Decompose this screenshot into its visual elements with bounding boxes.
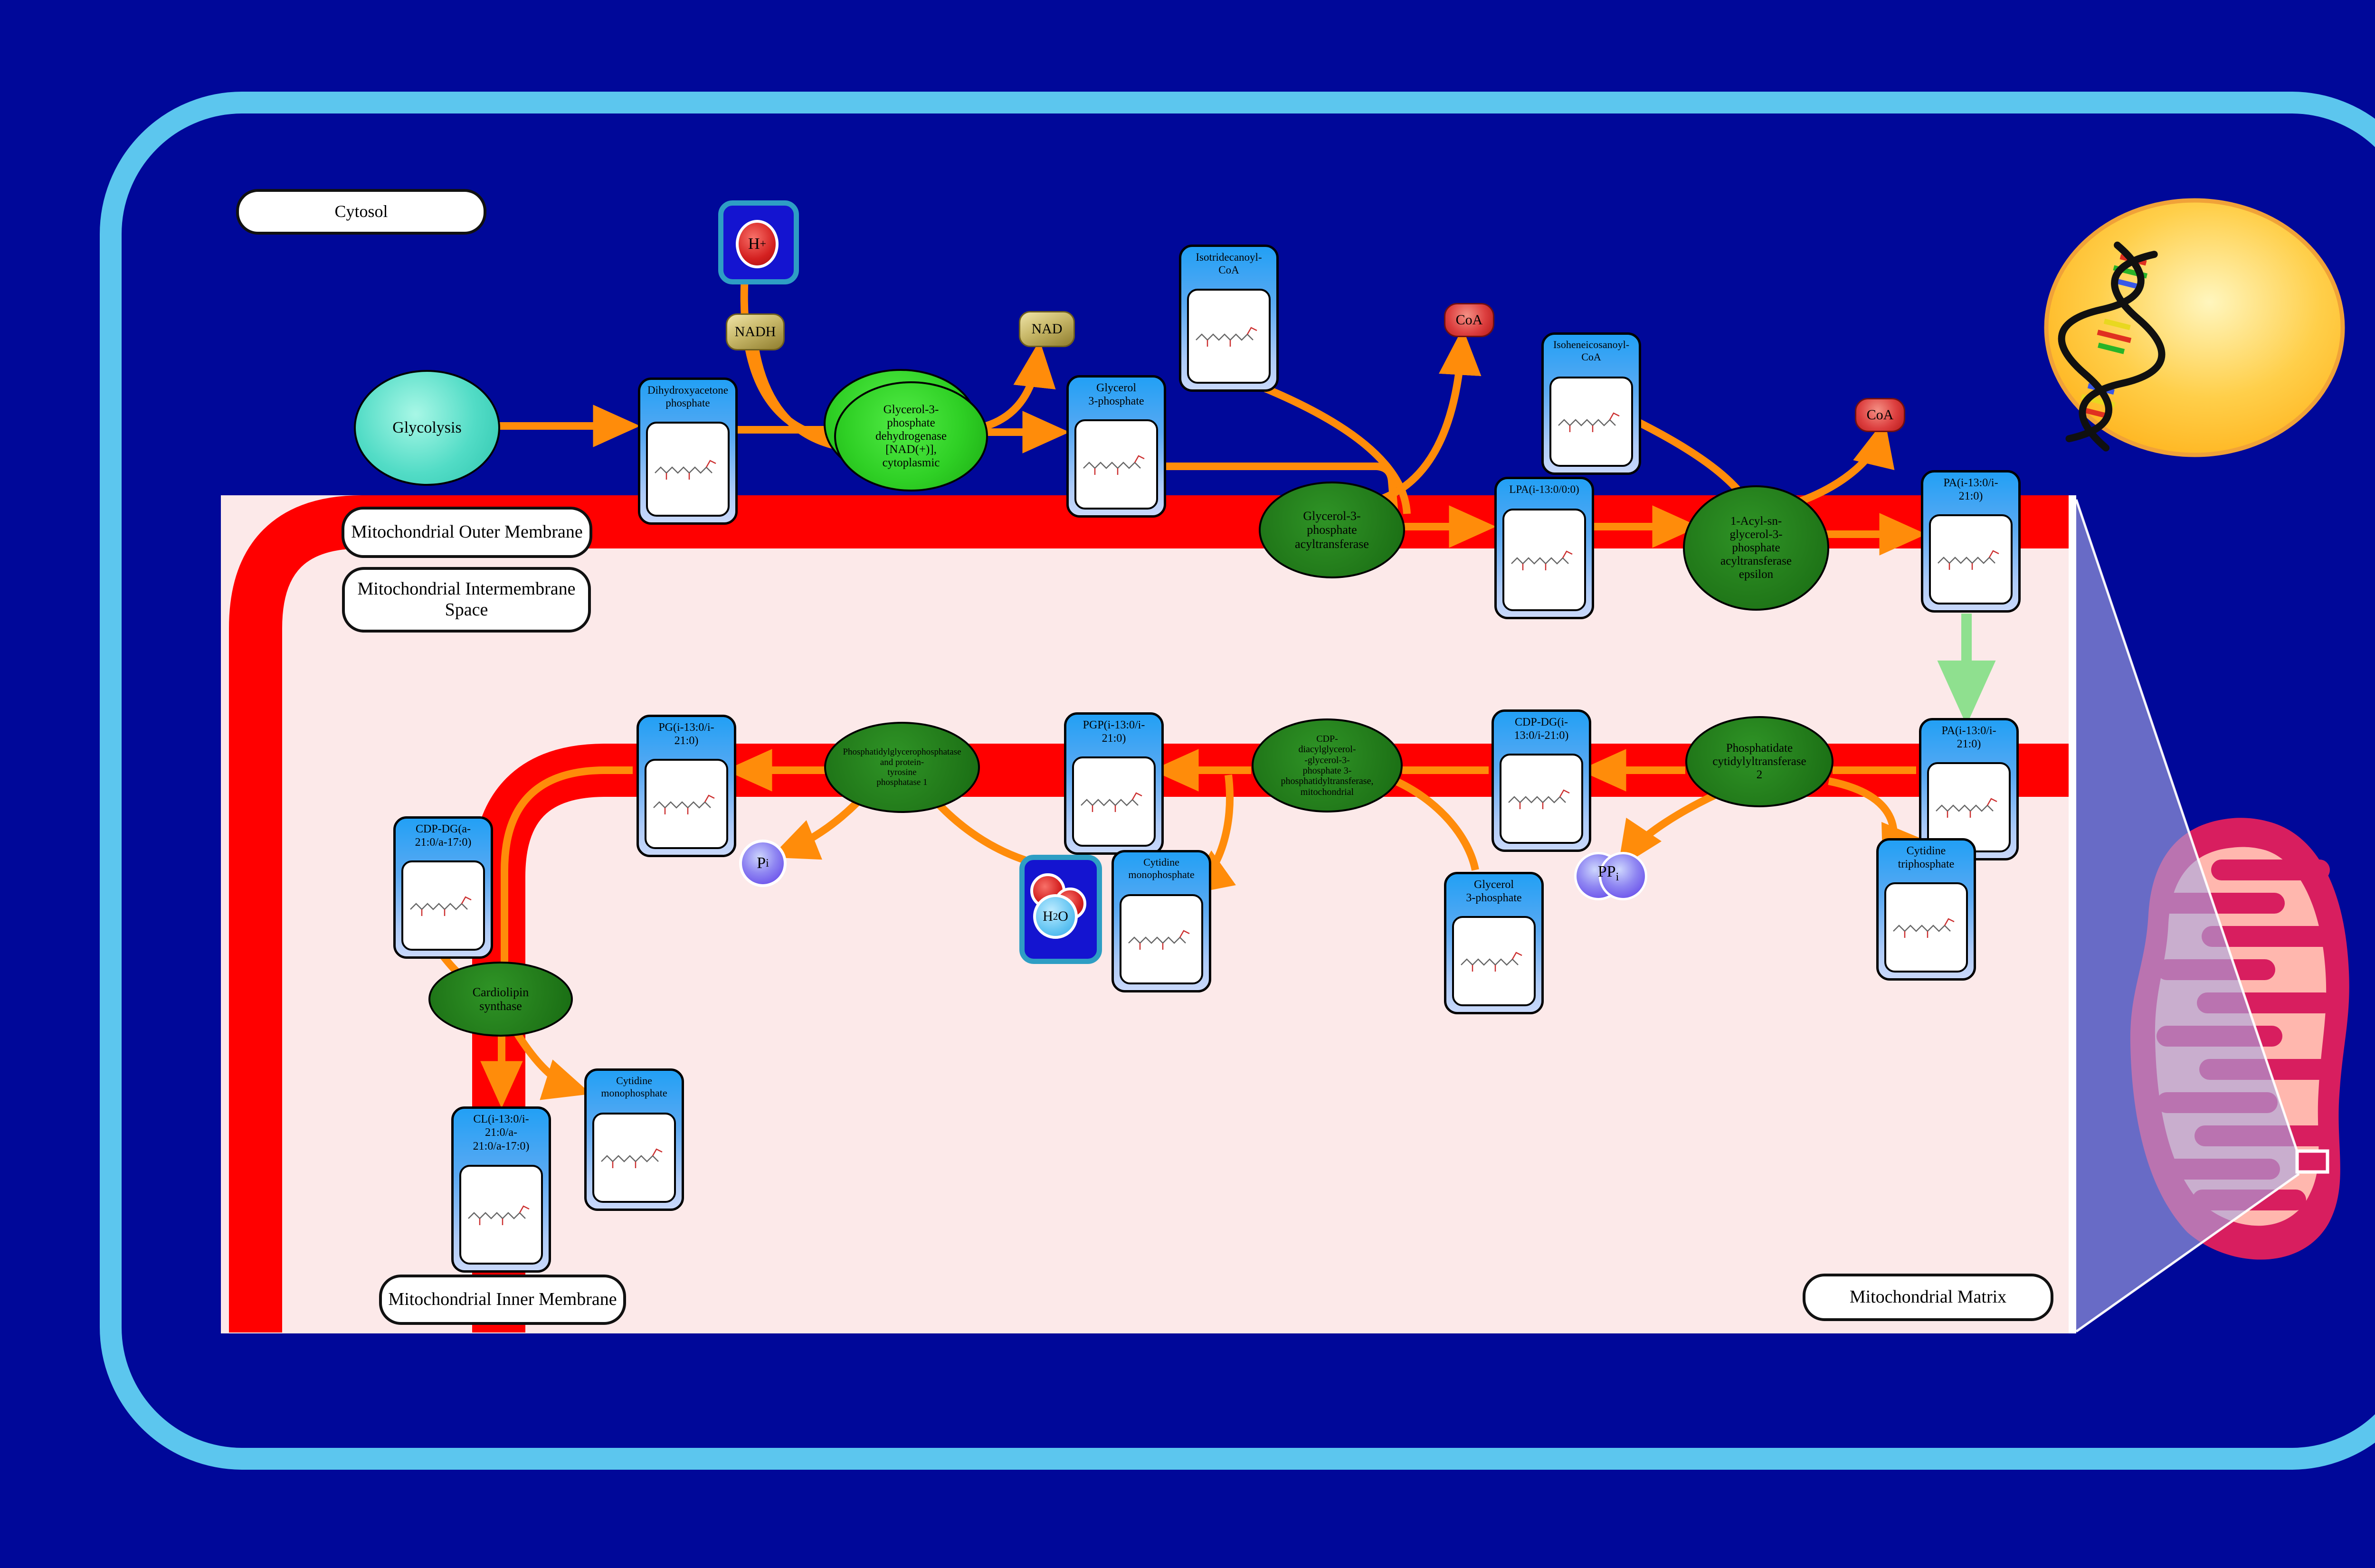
enzyme-agpat-epsilon[interactable]: 1-Acyl-sn- glycerol-3- phosphate acyltra…	[1683, 485, 1829, 611]
metabolite-label: CDP-DG(i- 13:0/i-21:0)	[1494, 716, 1589, 743]
enzyme-cdp-dag-g3p-phosphatidyltransferase[interactable]: CDP- diacylglycerol- -glycerol-3- phosph…	[1252, 718, 1403, 812]
molecule-structure-icon	[1081, 445, 1152, 483]
metabolite-label: PG(i-13:0/i- 21:0)	[639, 721, 734, 748]
metabolite-label: PA(i-13:0/i- 21:0)	[1921, 724, 2016, 751]
enzyme-gpd-cytoplasmic[interactable]: Glycerol-3- phosphate dehydrogenase [NAD…	[834, 381, 988, 491]
molecule-structure-icon	[1458, 942, 1529, 980]
enzyme-pgp-phosphatase[interactable]: Phosphatidylglycerophosphatase and prote…	[824, 722, 980, 813]
molecule-structure	[459, 1165, 543, 1265]
metabolite-cdp-dg-a[interactable]: CDP-DG(a- 21:0/a-17:0)	[393, 816, 493, 959]
region-label-outer-membrane: Mitochondrial Outer Membrane	[342, 507, 592, 558]
molecule-structure-icon	[598, 1139, 670, 1177]
cofactor-pi[interactable]: Pi	[739, 840, 787, 887]
process-glycolysis[interactable]: Glycolysis	[354, 370, 500, 486]
molecule-structure-icon	[1890, 908, 1962, 946]
icon-h2o[interactable]: H2O	[1019, 855, 1102, 964]
metabolite-isotridecanoyl-coa[interactable]: Isotridecanoyl- CoA	[1179, 245, 1279, 392]
molecule-structure-icon	[1078, 783, 1149, 821]
region-label-inner-membrane: Mitochondrial Inner Membrane	[379, 1275, 626, 1325]
molecule-structure	[592, 1113, 676, 1203]
molecule-structure-icon	[1556, 403, 1627, 441]
metabolite-label: Glycerol 3-phosphate	[1069, 381, 1164, 408]
water-sphere-icon: H2O	[1033, 894, 1078, 939]
metabolite-cl[interactable]: CL(i-13:0/i- 21:0/a- 21:0/a-17:0)	[451, 1106, 551, 1273]
metabolite-cmp-2[interactable]: Cytidine monophosphate	[584, 1068, 684, 1211]
metabolite-label: Isotridecanoyl- CoA	[1181, 251, 1276, 276]
metabolite-label: LPA(i-13:0/0:0)	[1497, 483, 1592, 496]
molecule-structure	[1502, 509, 1586, 611]
molecule-structure-icon	[1935, 540, 2006, 578]
metabolite-label: CL(i-13:0/i- 21:0/a- 21:0/a-17:0)	[454, 1113, 549, 1153]
molecule-structure-icon	[465, 1196, 537, 1234]
enzyme-phosphatidate-cytidylyltransferase-2[interactable]: Phosphatidate cytidylyltransferase 2	[1685, 716, 1833, 807]
metabolite-label: PGP(i-13:0/i- 21:0)	[1066, 718, 1161, 746]
metabolite-label: CDP-DG(a- 21:0/a-17:0)	[396, 822, 491, 850]
metabolite-cmp-matrix[interactable]: Cytidine monophosphate	[1111, 850, 1211, 992]
region-label-matrix: Mitochondrial Matrix	[1803, 1274, 2053, 1321]
metabolite-isoheneicosanoyl-coa[interactable]: Isoheneicosanoyl- CoA	[1541, 332, 1641, 475]
metabolite-pg[interactable]: PG(i-13:0/i- 21:0)	[636, 715, 736, 857]
molecule-structure-icon	[1933, 788, 2004, 826]
molecule-structure-icon	[408, 887, 479, 925]
molecule-structure	[401, 860, 485, 951]
metabolite-lpa[interactable]: LPA(i-13:0/0:0)	[1494, 477, 1594, 619]
molecule-structure	[645, 759, 728, 849]
cofactor-label: PPi	[1574, 863, 1643, 884]
enzyme-cardiolipin-synthase[interactable]: Cardiolipin synthase	[428, 962, 573, 1037]
metabolite-label: Dihydroxyacetone phosphate	[640, 384, 735, 409]
molecule-structure	[1072, 756, 1156, 847]
metabolite-label: Glycerol 3-phosphate	[1446, 878, 1541, 905]
molecule-structure-icon	[1509, 541, 1580, 579]
metabolite-pa-outer[interactable]: PA(i-13:0/i- 21:0)	[1921, 470, 2021, 613]
molecule-structure	[1549, 377, 1633, 467]
metabolite-label: PA(i-13:0/i- 21:0)	[1923, 476, 2018, 503]
metabolite-pgp[interactable]: PGP(i-13:0/i- 21:0)	[1064, 712, 1164, 855]
molecule-structure-icon	[1126, 920, 1197, 958]
molecule-structure	[1452, 916, 1536, 1006]
cofactor-ppi[interactable]: PPi	[1574, 852, 1643, 896]
metabolite-ctp[interactable]: Cytidine triphosphate	[1876, 838, 1976, 981]
metabolite-dhap[interactable]: Dihydroxyacetone phosphate	[638, 378, 738, 525]
metabolite-label: Isoheneicosanoyl- CoA	[1544, 339, 1639, 363]
metabolite-label: Cytidine monophosphate	[587, 1075, 682, 1099]
cofactor-nadh[interactable]: NADH	[726, 313, 785, 350]
molecule-structure	[646, 422, 730, 517]
molecule-structure-icon	[1193, 317, 1264, 355]
molecule-structure	[1187, 289, 1271, 384]
region-label-cytosol: Cytosol	[236, 189, 486, 235]
molecule-structure-icon	[1506, 780, 1577, 818]
molecule-structure	[1884, 882, 1968, 973]
pathway-diagram: Cytosol Mitochondrial Outer Membrane Mit…	[0, 0, 2375, 1568]
metabolite-cdp-dg-i[interactable]: CDP-DG(i- 13:0/i-21:0)	[1491, 709, 1591, 852]
h-plus-icon: H+	[736, 220, 779, 268]
cofactor-coa-1[interactable]: CoA	[1444, 303, 1494, 337]
molecule-structure	[1120, 894, 1203, 984]
molecule-structure	[1500, 754, 1583, 844]
metabolite-label: Cytidine monophosphate	[1114, 856, 1209, 881]
cofactor-coa-2[interactable]: CoA	[1855, 398, 1905, 432]
molecule-structure-icon	[652, 450, 723, 488]
molecule-structure	[1929, 514, 2013, 605]
metabolite-glycerol-3-phosphate[interactable]: Glycerol 3-phosphate	[1066, 375, 1166, 518]
metabolite-label: Cytidine triphosphate	[1879, 844, 1974, 871]
metabolite-glycerol-3-phosphate-matrix[interactable]: Glycerol 3-phosphate	[1444, 872, 1544, 1014]
molecule-structure	[1074, 419, 1158, 510]
enzyme-g3p-acyltransferase[interactable]: Glycerol-3- phosphate acyltransferase	[1259, 482, 1405, 578]
region-label-intermembrane-space: Mitochondrial Intermembrane Space	[342, 567, 591, 633]
ion-h-plus[interactable]: H+	[718, 200, 799, 284]
molecule-structure-icon	[651, 785, 722, 823]
cofactor-nad[interactable]: NAD	[1019, 311, 1075, 347]
